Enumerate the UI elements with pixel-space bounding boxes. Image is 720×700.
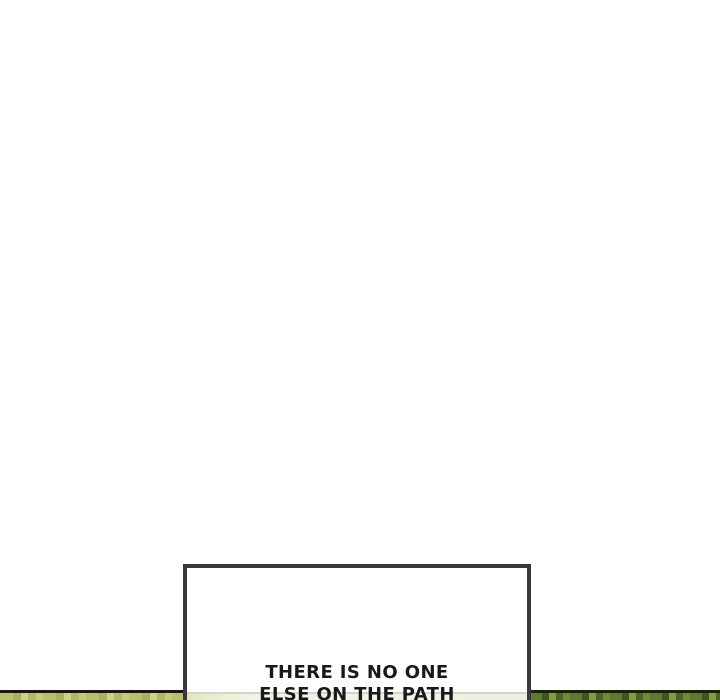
- caption-text: THERE IS NO ONE ELSE ON THE PATH: [187, 662, 527, 700]
- caption-line-2: ELSE ON THE PATH: [187, 684, 527, 700]
- bottom-panel-foliage-left: [0, 690, 186, 700]
- caption-line-1: THERE IS NO ONE: [187, 662, 527, 684]
- caption-panel: THERE IS NO ONE ELSE ON THE PATH: [183, 564, 531, 700]
- comic-page: THERE IS NO ONE ELSE ON THE PATH: [0, 0, 720, 700]
- bottom-panel-foliage-right: [530, 690, 720, 700]
